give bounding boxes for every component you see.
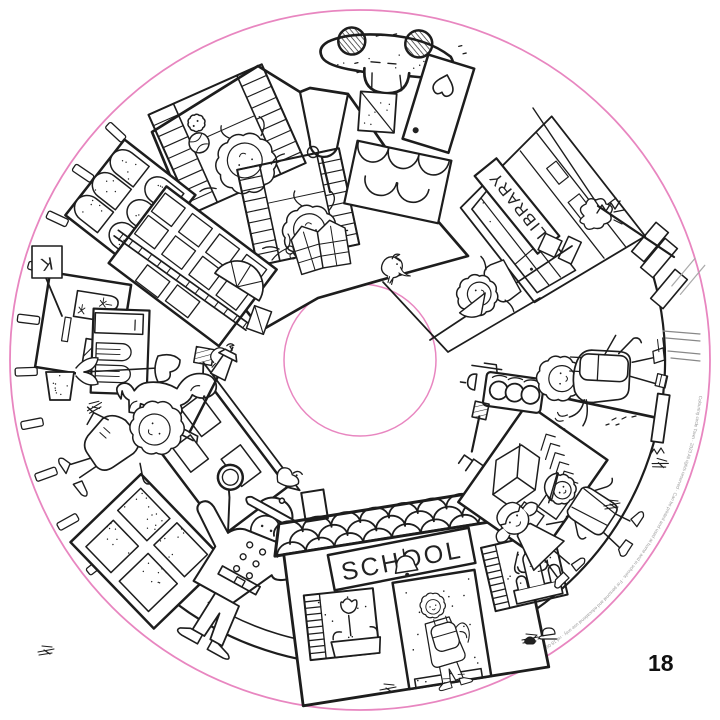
svg-text:18: 18 [648, 650, 674, 676]
